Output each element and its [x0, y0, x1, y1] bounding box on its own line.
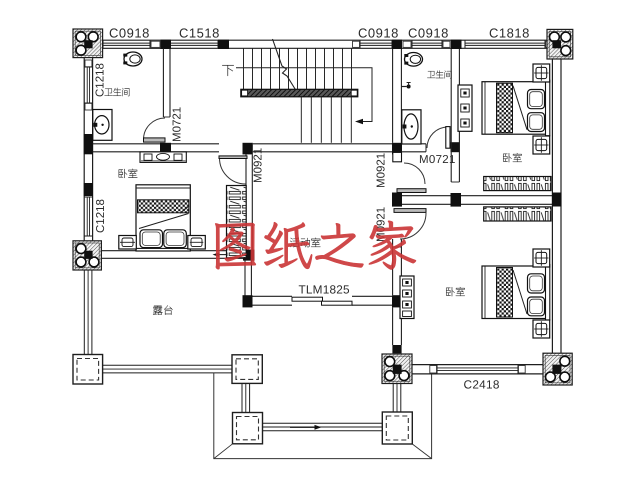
svg-text:M0921: M0921: [376, 153, 388, 188]
svg-text:C1818: C1818: [489, 26, 530, 41]
svg-text:C1218: C1218: [95, 199, 107, 233]
svg-text:C0918: C0918: [109, 26, 150, 41]
svg-text:C2418: C2418: [464, 378, 500, 392]
svg-text:M0921: M0921: [253, 148, 265, 183]
svg-text:C0918: C0918: [358, 26, 399, 41]
svg-text:C1518: C1518: [179, 26, 220, 41]
svg-text:C1218: C1218: [95, 63, 107, 97]
svg-text:TLM1825: TLM1825: [299, 283, 350, 297]
svg-text:M0721: M0721: [419, 154, 456, 166]
svg-text:M0721: M0721: [172, 107, 184, 142]
svg-text:C0918: C0918: [408, 26, 449, 41]
